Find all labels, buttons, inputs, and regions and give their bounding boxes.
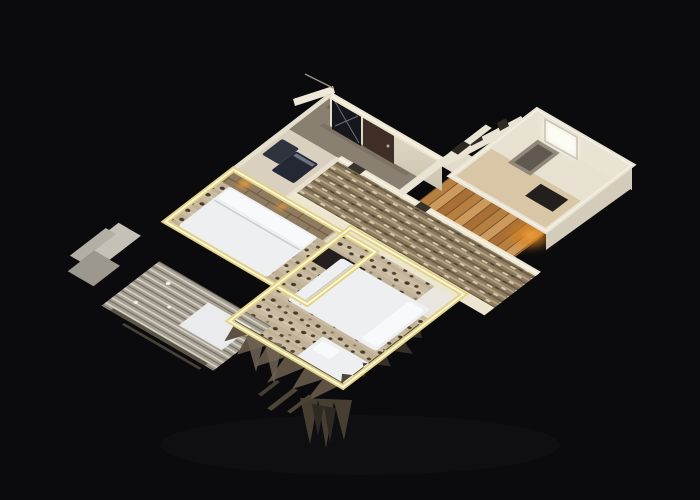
dollhouse-viewport[interactable]: [0, 0, 700, 500]
floor-shadow: [160, 415, 560, 475]
dollhouse-3d-model: [0, 0, 700, 500]
door-handle: [387, 145, 390, 148]
